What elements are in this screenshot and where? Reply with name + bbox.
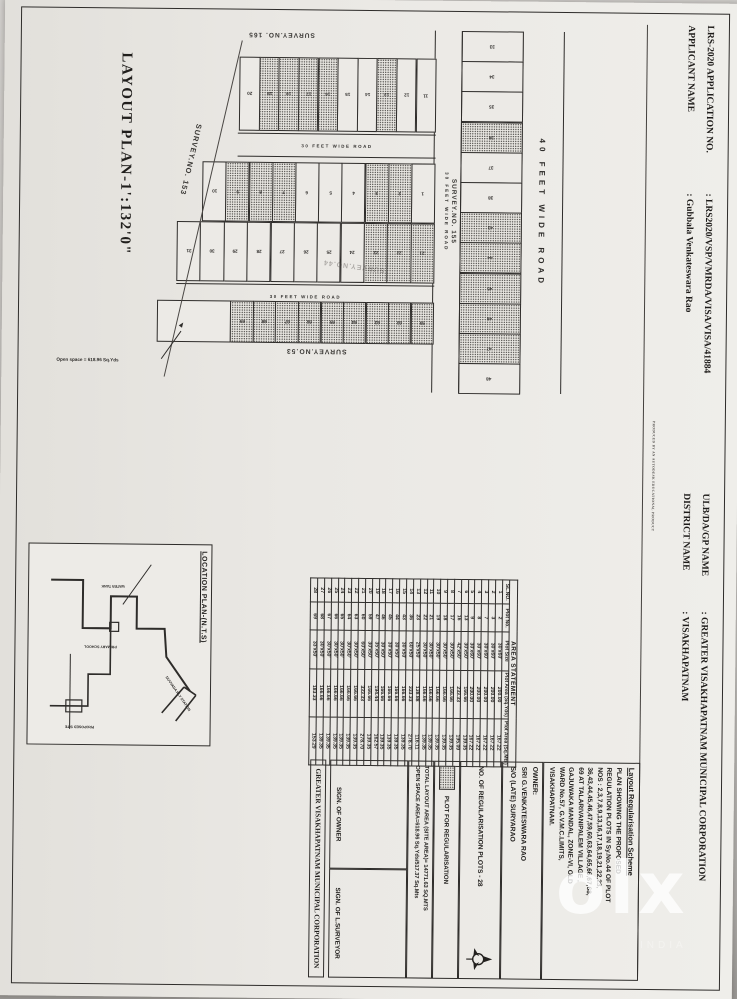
plot-column: 596063646566676869 bbox=[158, 300, 434, 343]
district-name-label: DISTRICT NAME bbox=[680, 493, 691, 611]
open-space-annotation: Open space = 618.96 Sq.Yds bbox=[56, 357, 118, 363]
table-cell: 116.11 bbox=[412, 718, 419, 766]
plot-cell: 29 bbox=[223, 221, 248, 281]
table-cell: 30'x50' bbox=[399, 631, 406, 670]
table-cell: 167.22 bbox=[494, 719, 501, 767]
plot-number: 13 bbox=[384, 93, 389, 98]
table-cell: 166.66 bbox=[439, 670, 446, 718]
plot-number: 29 bbox=[233, 249, 238, 254]
table-cell: 60'x50' bbox=[358, 630, 365, 669]
plot-cell: 35 bbox=[461, 91, 523, 123]
plot-number: 20 bbox=[247, 91, 252, 96]
table-cell: 1 bbox=[495, 580, 502, 605]
location-sketch bbox=[31, 543, 211, 743]
table-header-cell: Plot Size bbox=[502, 632, 509, 671]
plot-number: 45 bbox=[488, 286, 493, 291]
totals-block: TOTAL LAYOUT AREA (SITE AREA)= 14771.63 … bbox=[406, 760, 434, 978]
plot-number: 68 bbox=[262, 319, 267, 324]
plot-cell: 5 bbox=[318, 162, 343, 222]
owner-label: OWNER: bbox=[526, 767, 539, 975]
plot-cell: 46 bbox=[459, 303, 521, 335]
survey-165-label: SURVEY.NO. 165 bbox=[235, 31, 315, 39]
layout-plan-drawing: 40 FEET WIDE ROAD 3334353637384344454647… bbox=[134, 28, 645, 578]
thirty-feet-road-label: 30 FEET WIDE ROAD bbox=[301, 143, 372, 149]
plot-cell: 24 bbox=[340, 223, 365, 283]
plot-number: 15 bbox=[345, 92, 350, 97]
plot-cell: 19 bbox=[259, 57, 280, 131]
table-cell: 139.35 bbox=[398, 718, 405, 766]
plot-row-top: 333435363738434445464748 bbox=[458, 31, 524, 394]
table-cell: 139.35 bbox=[316, 717, 323, 765]
plot-cell: 60 bbox=[388, 302, 412, 344]
plot-number: 7 bbox=[283, 190, 286, 195]
plot-number: 14 bbox=[365, 92, 370, 97]
autocad-stamp-text: PRODUCED BY AN AUTODESK EDUCATIONAL PROD… bbox=[651, 421, 656, 532]
table-cell: 11 bbox=[427, 579, 434, 604]
header-row-1: LRS-2020 APPLICATION NO. : LRS2020/VSP/V… bbox=[695, 25, 715, 977]
plot-cell: 66 bbox=[298, 301, 322, 343]
plot-cell: 47 bbox=[458, 333, 520, 365]
plot-cell: 43 bbox=[460, 212, 522, 244]
plot-number: 1 bbox=[422, 191, 425, 196]
table-cell: 25'x50' bbox=[413, 631, 420, 670]
table-cell: 22 bbox=[420, 604, 427, 631]
plot-cell: 64 bbox=[343, 302, 367, 344]
plot-cell: 14 bbox=[357, 58, 378, 132]
table-cell: 166.66 bbox=[392, 669, 399, 717]
plot-number: 11 bbox=[424, 93, 429, 98]
table-cell: 30'x50' bbox=[460, 631, 467, 670]
plot-cell: 59 bbox=[410, 302, 434, 344]
table-cell: 167.22 bbox=[473, 718, 480, 766]
plot-number: 28 bbox=[256, 249, 261, 254]
table-cell: 139.35 bbox=[432, 718, 439, 766]
plot-number: 33 bbox=[490, 44, 495, 49]
table-cell: 65 bbox=[338, 603, 345, 630]
table-cell: 3 bbox=[482, 580, 489, 605]
plot-number: 63 bbox=[375, 321, 380, 326]
table-cell: 23 bbox=[345, 578, 352, 603]
table-cell: 139.35 bbox=[459, 718, 466, 766]
plot-cell: 27 bbox=[270, 222, 295, 282]
plot-number: 2 bbox=[399, 191, 402, 196]
table-cell: 200.00 bbox=[474, 670, 481, 718]
table-cell: 43 bbox=[399, 603, 406, 630]
table-cell: 30'x60' bbox=[467, 631, 474, 670]
plot-cell: 18 bbox=[278, 57, 299, 131]
application-no-value: : LRS2020/VSP/VMRDA/VISA/VISA/41884 bbox=[700, 193, 713, 493]
table-cell: 200.00 bbox=[467, 670, 474, 718]
document-header: LRS-2020 APPLICATION NO. : LRS2020/VSP/V… bbox=[637, 25, 724, 978]
plot-cell: 2 bbox=[388, 163, 413, 223]
plot-number: 46 bbox=[487, 316, 492, 321]
plot-number: 35 bbox=[490, 105, 495, 110]
table-cell: 139.35 bbox=[343, 717, 350, 765]
area-statement-table: AREA STATEMENTSL.NO.Plot No.Plot SizePlo… bbox=[308, 577, 518, 767]
plot-column: 11121314151617181920 bbox=[240, 57, 437, 131]
area-statement-table-wrap: AREA STATEMENTSL.NO.Plot No.Plot SizePlo… bbox=[308, 577, 518, 767]
table-cell: 30'x50' bbox=[378, 630, 385, 669]
plot-number: 27 bbox=[280, 250, 285, 255]
photo-of-document: LRS-2020 APPLICATION NO. : LRS2020/VSP/V… bbox=[0, 0, 737, 999]
plot-number: 5 bbox=[329, 190, 332, 195]
plot-number: 31 bbox=[186, 249, 191, 254]
plot-cell: 28 bbox=[246, 222, 271, 282]
plot-cell: 26 bbox=[293, 222, 318, 282]
table-cell: 138.88 bbox=[412, 670, 419, 718]
table-cell: 13 bbox=[461, 604, 468, 631]
table-cell: 139.35 bbox=[364, 717, 371, 765]
plot-cell: 15 bbox=[337, 58, 358, 132]
regularisation-count-text: NO. OF REGULARISATION PLOTS - 28 bbox=[476, 766, 484, 886]
plot-cell: 63 bbox=[365, 302, 389, 344]
plot-cell: 34 bbox=[461, 61, 523, 93]
plot-cell: 65 bbox=[320, 301, 344, 343]
olx-watermark-sub: INDIA bbox=[640, 940, 687, 951]
table-cell: 30'x60' bbox=[495, 632, 502, 671]
legend-label: PLOT FOR REGULARISATION bbox=[442, 796, 450, 884]
table-cell: 166.66 bbox=[316, 669, 323, 717]
plot-cell: 4 bbox=[341, 163, 366, 223]
table-header-cell: Plot No. bbox=[502, 604, 509, 631]
plot-cell: 68 bbox=[253, 301, 277, 343]
regularisation-count-row: NO. OF REGULARISATION PLOTS - 28 bbox=[458, 761, 502, 979]
plot-cell: 30 bbox=[200, 221, 225, 281]
table-cell: 139.35 bbox=[391, 718, 398, 766]
plot-cell: 7 bbox=[272, 162, 297, 222]
table-cell: 30'x50' bbox=[433, 631, 440, 670]
plot-cell: 8 bbox=[248, 162, 273, 222]
plot-number: 47 bbox=[487, 346, 492, 351]
table-cell: 167.22 bbox=[480, 719, 487, 767]
table-cell: 200.00 bbox=[487, 670, 494, 718]
plot-column: 2122232425262728293031 bbox=[177, 221, 435, 282]
legend-row: PLOT FOR REGULARISATION bbox=[432, 761, 460, 979]
plot-number: 23 bbox=[373, 251, 378, 256]
plot-number: 8 bbox=[259, 189, 262, 194]
table-cell: 9 bbox=[468, 604, 475, 631]
table-cell: 2 bbox=[489, 580, 496, 605]
ulb-name-value: : GREATER VISAKHAPATNAM MUNICIPAL CORPOR… bbox=[695, 611, 708, 941]
table-cell: 12 bbox=[420, 579, 427, 604]
header-row-2: APPLICANT NAME : Gubbala Venkateswara Ra… bbox=[676, 25, 696, 977]
plot-number: 3 bbox=[375, 191, 378, 196]
table-cell: 139.35 bbox=[323, 717, 330, 765]
table-cell: 139.35 bbox=[418, 718, 425, 766]
plot-cell: 16 bbox=[317, 57, 338, 131]
table-cell: 68 bbox=[317, 602, 324, 629]
table-cell: 21 bbox=[427, 604, 434, 631]
olx-watermark: olx bbox=[556, 846, 689, 930]
table-cell: 30'x50' bbox=[365, 630, 372, 669]
plot-cell: 45 bbox=[459, 273, 521, 305]
table-cell: 60'x50' bbox=[406, 631, 413, 670]
location-plan-title: LOCATION PLAN-(N.T.S) bbox=[199, 551, 207, 643]
table-cell: 9 bbox=[441, 579, 448, 604]
table-cell: 33'x50' bbox=[310, 630, 317, 669]
table-cell: 200.00 bbox=[480, 670, 487, 718]
table-cell: 18 bbox=[379, 579, 386, 604]
plot-cell: 12 bbox=[396, 58, 417, 132]
table-cell: 166.66 bbox=[378, 669, 385, 717]
table-cell: 63 bbox=[351, 603, 358, 630]
gvmc-footer-box: GREATER VISAKHAPATNAM MUNICIPAL CORPORAT… bbox=[308, 759, 326, 977]
table-cell: 66 bbox=[331, 603, 338, 630]
owner-relation: S/O (LATE) SURYARAO bbox=[504, 766, 517, 974]
ulb-name-label: ULB/DA/GP NAME bbox=[699, 493, 710, 611]
table-cell: 166.66 bbox=[385, 669, 392, 717]
applicant-name-label: APPLICANT NAME bbox=[684, 25, 696, 193]
table-cell: 166.66 bbox=[433, 670, 440, 718]
plot-number: 64 bbox=[352, 320, 357, 325]
plot-cell: 6 bbox=[295, 162, 320, 222]
owner-name: SRI G.VENKATESWARA RAO bbox=[515, 767, 528, 975]
plot-number: 59 bbox=[420, 321, 425, 326]
table-cell: 30'x50' bbox=[330, 630, 337, 669]
plot-cell: 20 bbox=[239, 57, 260, 131]
table-cell: 21 bbox=[358, 578, 365, 603]
plot-cell: 44 bbox=[459, 242, 521, 274]
table-cell: 19 bbox=[372, 579, 379, 604]
table-header-cell: Plot Area (Sq.Mts) bbox=[501, 719, 508, 767]
plot-column: 12345678910 bbox=[203, 161, 436, 221]
table-cell: 45 bbox=[386, 603, 393, 630]
north-arrow-icon bbox=[464, 944, 494, 974]
table-cell: 27 bbox=[317, 578, 324, 603]
plot-cell: 38 bbox=[460, 182, 522, 214]
table-cell: 4 bbox=[475, 580, 482, 605]
forty-feet-road-label: 40 FEET WIDE ROAD bbox=[537, 139, 548, 288]
table-cell: 60 bbox=[358, 603, 365, 630]
table-cell: 18 bbox=[440, 604, 447, 631]
table-cell: 16 bbox=[393, 579, 400, 604]
plot-number: 60 bbox=[397, 321, 402, 326]
table-cell: 139.35 bbox=[350, 717, 357, 765]
plot-number: 34 bbox=[490, 74, 495, 79]
plan-title: LAYOUT PLAN-1':132'0" bbox=[116, 52, 135, 255]
plot-number: 19 bbox=[267, 91, 272, 96]
location-plan-box: LOCATION PLAN-(N.T.S) DUVVADA RLY STATIO… bbox=[26, 542, 212, 746]
table-cell: 30'x50' bbox=[426, 631, 433, 670]
table-cell: 67 bbox=[324, 603, 331, 630]
plot-number: 37 bbox=[489, 165, 494, 170]
table-cell: 139.35 bbox=[377, 717, 384, 765]
table-cell: 166.66 bbox=[446, 670, 453, 718]
hatch-swatch-icon bbox=[439, 766, 455, 790]
table-cell: 13 bbox=[413, 579, 420, 604]
table-cell: 59 bbox=[365, 603, 372, 630]
table-cell: 23 bbox=[413, 603, 420, 630]
plot-number: 12 bbox=[404, 93, 409, 98]
plot-cell: 37 bbox=[460, 152, 522, 184]
table-cell: 69 bbox=[310, 602, 317, 629]
table-cell: 167.22 bbox=[487, 719, 494, 767]
table-cell: 5 bbox=[468, 580, 475, 605]
plot-number: 4 bbox=[352, 190, 355, 195]
plot-number: 38 bbox=[489, 195, 494, 200]
table-cell: 30'x60' bbox=[474, 631, 481, 670]
plot-cell: 25 bbox=[317, 222, 342, 282]
table-cell: 20 bbox=[365, 578, 372, 603]
plot-cell: 21 bbox=[410, 223, 435, 283]
table-cell: 6 bbox=[461, 579, 468, 604]
table-cell: 30'x50' bbox=[392, 631, 399, 670]
table-cell: 194.44 bbox=[371, 669, 378, 717]
table-cell: 278.70 bbox=[357, 717, 364, 765]
plot-number: 36 bbox=[489, 135, 494, 140]
table-cell: 30'x50' bbox=[419, 631, 426, 670]
table-cell: 166.66 bbox=[350, 669, 357, 717]
plot-number: 43 bbox=[488, 225, 493, 230]
table-cell: 30'x50' bbox=[385, 630, 392, 669]
table-cell: 166.66 bbox=[419, 670, 426, 718]
sign-of-owner-box: SIGN. OF OWNER bbox=[329, 760, 408, 870]
table-cell: 333.33 bbox=[405, 670, 412, 718]
table-cell: 139.35 bbox=[439, 718, 446, 766]
signature-row: SIGN. OF OWNER SIGN. OF L.SURVEYOR bbox=[328, 760, 408, 979]
table-cell: 139.35 bbox=[336, 717, 343, 765]
plot-number: 30 bbox=[210, 249, 215, 254]
plot-number: 69 bbox=[239, 319, 244, 324]
table-cell: 139.35 bbox=[446, 718, 453, 766]
plot-cell: 17 bbox=[298, 57, 319, 131]
table-header-cell: SL.NO. bbox=[502, 580, 509, 605]
table-cell: 195.09 bbox=[453, 718, 460, 766]
table-cell: 30'x50' bbox=[344, 630, 351, 669]
table-cell: 7 bbox=[454, 579, 461, 604]
applicant-name-value: : Gubbala Venkateswara Rao bbox=[681, 193, 694, 493]
plot-number: 18 bbox=[286, 92, 291, 97]
table-cell: 166.66 bbox=[364, 669, 371, 717]
plot-cell: 67 bbox=[275, 301, 299, 343]
table-cell: 166.66 bbox=[337, 669, 344, 717]
plot-cell: 1 bbox=[411, 163, 436, 223]
plot-cell: 36 bbox=[461, 122, 523, 154]
table-cell: 25 bbox=[331, 578, 338, 603]
plot-number: 17 bbox=[306, 92, 311, 97]
sign-of-surveyor-box: SIGN. OF L.SURVEYOR bbox=[328, 869, 407, 979]
plot-number: 10 bbox=[212, 189, 217, 194]
location-label: WATER TANK bbox=[101, 584, 124, 588]
application-no-label: LRS-2020 APPLICATION NO. bbox=[703, 25, 715, 193]
location-label: PROPOSED SITE bbox=[65, 725, 94, 729]
plot-number: 9 bbox=[236, 189, 239, 194]
survey-153-label: SURVEY.NO. 153 bbox=[178, 123, 203, 196]
plot-cell: 33 bbox=[462, 31, 524, 63]
table-cell: 16 bbox=[454, 604, 461, 631]
table-row: 286933'x50'183.33153.29 bbox=[309, 578, 318, 765]
table-cell: 8 bbox=[447, 579, 454, 604]
survey-155-label: SURVEY.NO. 155 bbox=[450, 179, 458, 244]
plot-cell: 3 bbox=[364, 163, 389, 223]
table-cell: 166.66 bbox=[460, 670, 467, 718]
survey-53-label: SURVEY.NO.53 bbox=[257, 347, 347, 355]
table-cell: 30'x50' bbox=[351, 630, 358, 669]
table-cell: 8 bbox=[475, 604, 482, 631]
plot-number: 6 bbox=[306, 190, 309, 195]
table-cell: 166.66 bbox=[344, 669, 351, 717]
table-cell: 278.70 bbox=[405, 718, 412, 766]
table-cell: 30'x50' bbox=[317, 630, 324, 669]
plot-number: 21 bbox=[420, 251, 425, 256]
table-cell: 19 bbox=[433, 604, 440, 631]
plot-number: 22 bbox=[397, 251, 402, 256]
plot-cell: 13 bbox=[376, 58, 397, 132]
table-cell: 233.33 bbox=[453, 670, 460, 718]
table-cell: 24 bbox=[338, 578, 345, 603]
plot-cell: 11 bbox=[415, 58, 436, 132]
plot-number: 67 bbox=[284, 320, 289, 325]
table-cell: 10 bbox=[434, 579, 441, 604]
plot-number: 26 bbox=[303, 250, 308, 255]
plot-number: 44 bbox=[488, 256, 493, 261]
plot-cell: 48 bbox=[458, 363, 520, 395]
table-cell: 139.35 bbox=[329, 717, 336, 765]
table-cell: 44 bbox=[392, 603, 399, 630]
table-cell: 36 bbox=[406, 603, 413, 630]
table-cell: 2 bbox=[495, 604, 502, 631]
table-cell: 166.66 bbox=[323, 669, 330, 717]
plot-number: 25 bbox=[326, 250, 331, 255]
table-cell: 7 bbox=[481, 604, 488, 631]
thirty-feet-road-label: 30 FEET WIDE ROAD bbox=[269, 293, 340, 299]
table-cell: 30'x50' bbox=[337, 630, 344, 669]
location-label: PRIMARY SCHOOL bbox=[84, 644, 117, 648]
table-cell: 333.33 bbox=[357, 669, 364, 717]
plot-cell: 9 bbox=[225, 161, 250, 221]
plot-number: 66 bbox=[307, 320, 312, 325]
plot-number: 65 bbox=[329, 320, 334, 325]
table-cell: 46 bbox=[379, 603, 386, 630]
table-cell: 22 bbox=[352, 578, 359, 603]
table-cell: 47 bbox=[372, 603, 379, 630]
thirty-feet-road-vertical: 30 FEET WIDE ROAD bbox=[238, 133, 436, 159]
table-cell: 166.66 bbox=[398, 669, 405, 717]
table-cell: 30'x60' bbox=[481, 632, 488, 671]
plot-number: 16 bbox=[325, 92, 330, 97]
plot-number: 48 bbox=[487, 376, 492, 381]
table-cell: 167.22 bbox=[466, 718, 473, 766]
table-cell: 17 bbox=[386, 579, 393, 604]
table-cell: 139.35 bbox=[425, 718, 432, 766]
table-cell: 35'x50' bbox=[371, 630, 378, 669]
table-cell: 200.00 bbox=[494, 670, 501, 718]
table-cell: 17 bbox=[447, 604, 454, 631]
table-cell: 30'x50' bbox=[447, 631, 454, 670]
open-space-plot bbox=[157, 300, 231, 343]
table-header-cell: Plot Area (Sq.Yds) bbox=[501, 671, 508, 719]
table-cell: 30'x50' bbox=[324, 630, 331, 669]
table-cell: 42'x50' bbox=[454, 631, 461, 670]
table-cell: 183.33 bbox=[309, 669, 316, 717]
table-cell: 30'x50' bbox=[440, 631, 447, 670]
table-cell: 28 bbox=[311, 578, 318, 603]
table-cell: 153.29 bbox=[309, 717, 316, 765]
plot-cell: 69 bbox=[230, 301, 254, 343]
owner-block: OWNER: SRI G.VENKATESWARA RAO S/O (LATE)… bbox=[500, 761, 543, 979]
plot-cell: 23 bbox=[363, 223, 388, 283]
table-cell: 15 bbox=[400, 579, 407, 604]
table-cell: 162.57 bbox=[370, 717, 377, 765]
table-cell: 14 bbox=[406, 579, 413, 604]
forty-feet-road: 40 FEET WIDE ROAD bbox=[519, 32, 565, 394]
plot-number: 24 bbox=[350, 250, 355, 255]
table-cell: 166.66 bbox=[426, 670, 433, 718]
table-cell: 3 bbox=[488, 604, 495, 631]
plot-cell: 22 bbox=[387, 223, 412, 283]
table-cell: 26 bbox=[324, 578, 331, 603]
table-cell: 166.66 bbox=[330, 669, 337, 717]
